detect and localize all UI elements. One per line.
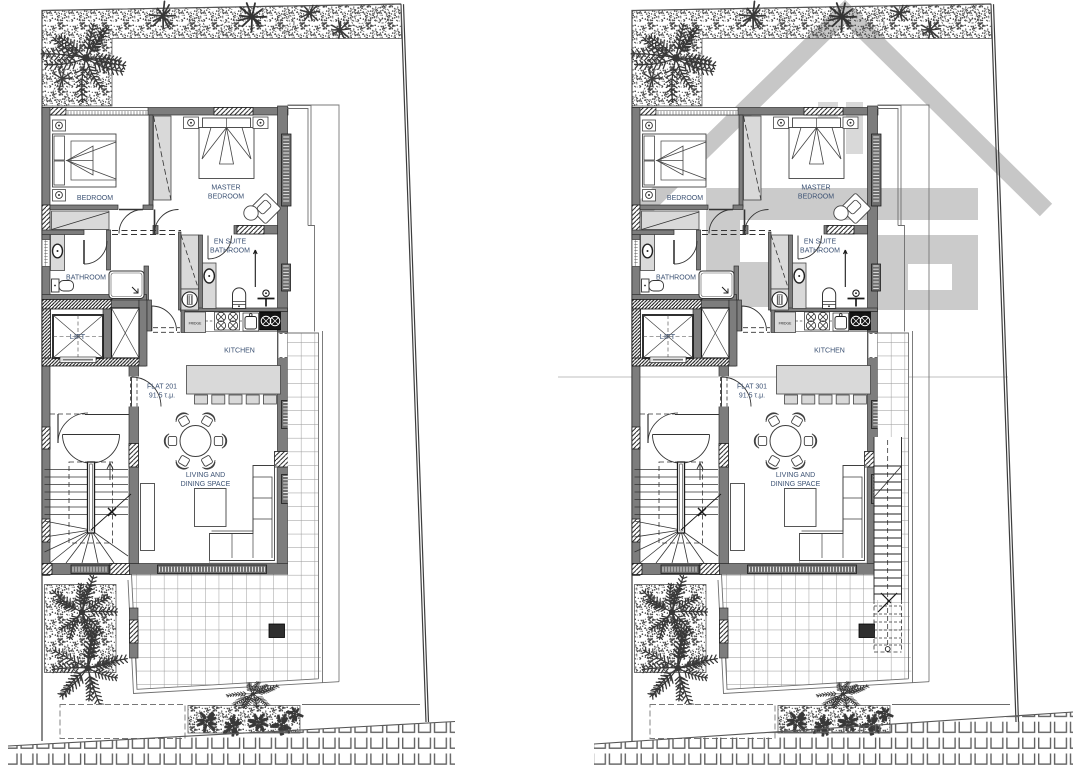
svg-text:KITCHEN: KITCHEN (814, 348, 845, 355)
svg-text:DINING SPACE: DINING SPACE (181, 481, 231, 488)
svg-text:FLAT 201: FLAT 201 (147, 384, 177, 391)
svg-text:BEDROOM: BEDROOM (667, 195, 703, 202)
svg-text:91.5 τ.μ.: 91.5 τ.μ. (739, 393, 765, 400)
svg-text:MASTER: MASTER (211, 185, 240, 192)
svg-text:BATHROOM: BATHROOM (656, 275, 696, 282)
svg-text:BATHROOM: BATHROOM (66, 275, 106, 282)
svg-text:BEDROOM: BEDROOM (798, 194, 834, 201)
svg-text:LIVING AND: LIVING AND (186, 472, 225, 479)
svg-text:FRIDGE: FRIDGE (189, 321, 203, 325)
svg-text:BATHROOM: BATHROOM (210, 248, 250, 255)
svg-text:LIFT: LIFT (70, 332, 86, 341)
svg-text:LIFT: LIFT (660, 332, 676, 341)
svg-text:KITCHEN: KITCHEN (224, 348, 255, 355)
svg-text:MASTER: MASTER (801, 185, 830, 192)
svg-text:FLAT 301: FLAT 301 (737, 384, 767, 391)
svg-text:BATHROOM: BATHROOM (800, 248, 840, 255)
svg-text:FRIDGE: FRIDGE (779, 321, 793, 325)
svg-text:LIVING AND: LIVING AND (776, 472, 815, 479)
svg-text:BEDROOM: BEDROOM (208, 194, 244, 201)
svg-text:BEDROOM: BEDROOM (77, 195, 113, 202)
svg-text:DINING SPACE: DINING SPACE (771, 481, 821, 488)
svg-text:91.5 τ.μ.: 91.5 τ.μ. (149, 393, 175, 400)
